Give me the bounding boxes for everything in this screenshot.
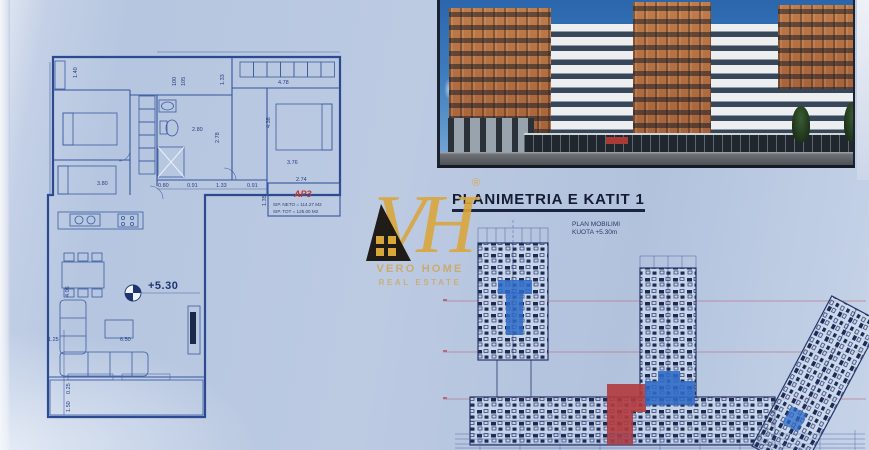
tree <box>844 102 855 142</box>
dimension-label: 0.25 <box>66 383 72 394</box>
real-estate-flyer-page: +5.30 AP3 SIP. NETO = 114.27 M2 SIP. TOT… <box>0 0 869 450</box>
building-tower-right <box>778 5 855 89</box>
road <box>440 152 855 168</box>
dimension-label: 1.35 <box>262 195 268 206</box>
dimension-label: 105 <box>181 77 187 86</box>
wardrobe-top <box>240 62 335 77</box>
dimension-label: 4.38 <box>266 117 272 128</box>
dimension-label: 3.76 <box>287 160 298 166</box>
apartment-label-box: AP3 SIP. NETO = 114.27 M2 SIP. TOT = 125… <box>273 189 322 214</box>
balcony <box>50 380 203 415</box>
dimension-lines <box>50 52 340 415</box>
building-tower-center <box>633 2 711 135</box>
apartment-label: AP3 <box>293 189 312 199</box>
dimension-label: 2.74 <box>296 177 307 183</box>
building-exterior-photo <box>437 0 855 168</box>
dimension-label: 1.33 <box>216 183 227 189</box>
area-neto-label: SIP. NETO = 114.27 M2 <box>273 202 322 207</box>
dimension-label: 0.80 <box>158 183 169 189</box>
level-label: +5.30 <box>148 280 178 292</box>
apartment-floorplan: +5.30 AP3 SIP. NETO = 114.27 M2 SIP. TOT… <box>40 48 352 450</box>
highlighted-unit-blue-t <box>498 280 532 294</box>
dimension-label: 4.05 <box>65 286 71 297</box>
siteplan-drawing <box>440 216 869 450</box>
dimension-label: 100 <box>172 77 178 86</box>
dimension-label: 1.50 <box>66 401 72 412</box>
shop-sign <box>606 137 628 144</box>
dimension-label: 2.80 <box>192 127 203 133</box>
building-colonnade <box>448 118 534 152</box>
kitchen <box>58 212 143 229</box>
dimension-label: 1.33 <box>220 74 226 85</box>
dimension-label: 4.78 <box>278 80 289 86</box>
bathroom <box>158 100 184 177</box>
dimension-label: 0.91 <box>247 183 258 189</box>
vero-home-logo: VH ® VERO HOME REAL ESTATE <box>358 156 498 306</box>
siteplan-block-angled-wing <box>752 296 869 450</box>
area-total-label: SIP. TOT = 125.00 M2 <box>273 209 319 214</box>
registered-trademark-icon: ® <box>472 177 480 189</box>
wardrobe-corridor <box>139 96 155 174</box>
dimension-label: 1.40 <box>73 67 79 78</box>
paper-edge-right <box>857 0 869 180</box>
bedroom-3 <box>276 104 332 150</box>
dimension-label: 0.91 <box>187 183 198 189</box>
tree <box>792 106 810 142</box>
dimension-label: 3.80 <box>97 181 108 187</box>
logo-line2: REAL ESTATE <box>379 278 462 287</box>
bedroom-2 <box>58 166 116 194</box>
building-tower-left <box>449 8 551 134</box>
bedroom-1 <box>63 113 117 145</box>
dimension-labels: 1.40 100 105 1.33 4.78 2.80 2.78 4.38 3.… <box>48 67 307 412</box>
logo-line1: VERO HOME <box>376 263 463 275</box>
dimension-label: 2.78 <box>215 132 221 143</box>
floorplan-outer-walls <box>48 57 340 417</box>
dimension-label: 6.50 <box>120 337 131 343</box>
dimension-label: 1.25 <box>48 337 59 343</box>
